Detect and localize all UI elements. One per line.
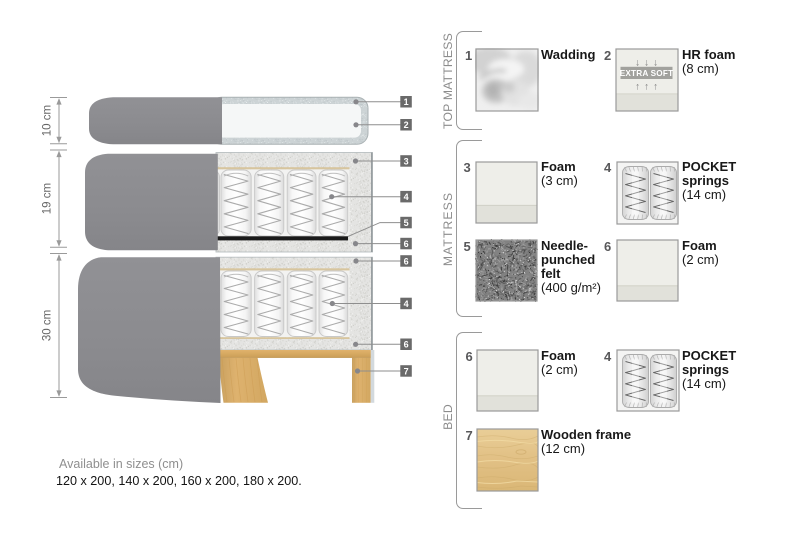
- svg-text:2: 2: [404, 120, 409, 130]
- svg-text:6: 6: [404, 340, 409, 350]
- svg-text:↑: ↑: [635, 82, 640, 93]
- svg-text:1: 1: [404, 97, 409, 107]
- svg-text:30 cm: 30 cm: [42, 310, 54, 341]
- svg-text:↑: ↑: [653, 82, 658, 93]
- svg-text:3: 3: [404, 156, 409, 166]
- svg-text:10 cm: 10 cm: [42, 105, 54, 136]
- svg-text:5: 5: [404, 218, 409, 228]
- svg-text:19 cm: 19 cm: [42, 183, 54, 214]
- svg-text:↑: ↑: [644, 82, 649, 93]
- svg-text:6: 6: [404, 256, 409, 266]
- svg-text:EXTRA SOFT: EXTRA SOFT: [619, 69, 673, 78]
- svg-text:7: 7: [404, 366, 409, 376]
- svg-text:4: 4: [404, 192, 409, 202]
- svg-text:6: 6: [404, 239, 409, 249]
- svg-text:4: 4: [404, 299, 409, 309]
